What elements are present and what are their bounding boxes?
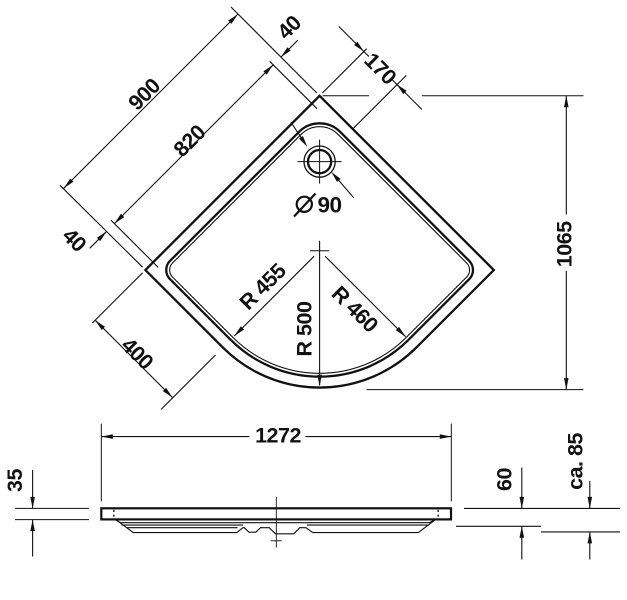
svg-text:60: 60 [492,468,516,491]
svg-text:1272: 1272 [255,424,301,448]
svg-text:35: 35 [3,469,27,492]
svg-text:90: 90 [318,193,342,218]
svg-text:R 500: R 500 [293,301,317,356]
svg-text:1065: 1065 [552,221,576,267]
svg-text:ca. 85: ca. 85 [563,433,587,490]
